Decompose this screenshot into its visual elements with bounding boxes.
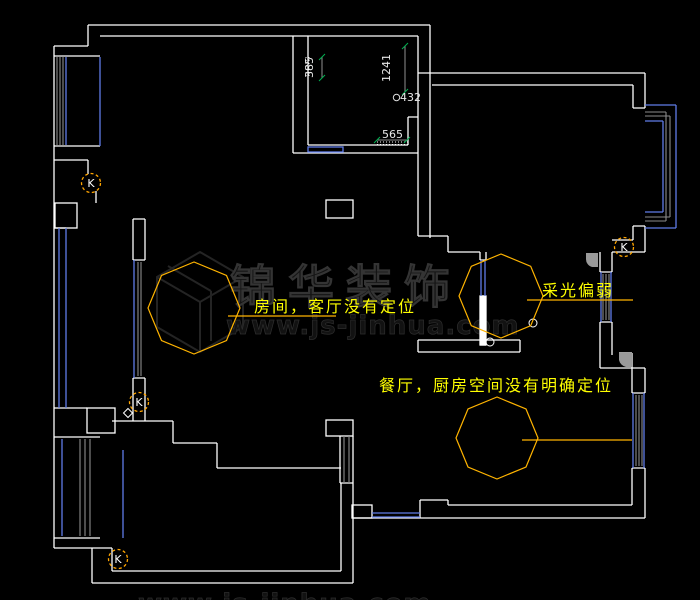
annotation-lighting-text[interactable]: 采光偏弱 bbox=[542, 281, 614, 300]
dimension-1241: 1241 bbox=[380, 54, 393, 82]
dimension-432: 432 bbox=[400, 91, 421, 104]
k-marker-label: K bbox=[135, 396, 143, 409]
k-marker-label: K bbox=[87, 177, 95, 190]
k-marker-label: K bbox=[620, 241, 628, 254]
annotation-living-text[interactable]: 房间，客厅没有定位 bbox=[254, 297, 416, 316]
watermark-url-bottom: www.js-jinhua.com bbox=[138, 589, 432, 600]
door-leaf bbox=[480, 296, 486, 345]
floorplan-canvas[interactable]: 锦华装饰 www.js-jinhua.com www.js-jinhua.com bbox=[0, 0, 700, 600]
cad-viewport[interactable]: 锦华装饰 www.js-jinhua.com www.js-jinhua.com bbox=[0, 0, 700, 600]
dimension-385: 385 bbox=[303, 57, 316, 78]
dimension-565: 565 bbox=[382, 128, 403, 141]
annotation-dining-text[interactable]: 餐厅，厨房空间没有明确定位 bbox=[379, 376, 613, 395]
k-marker-label: K bbox=[114, 553, 122, 566]
